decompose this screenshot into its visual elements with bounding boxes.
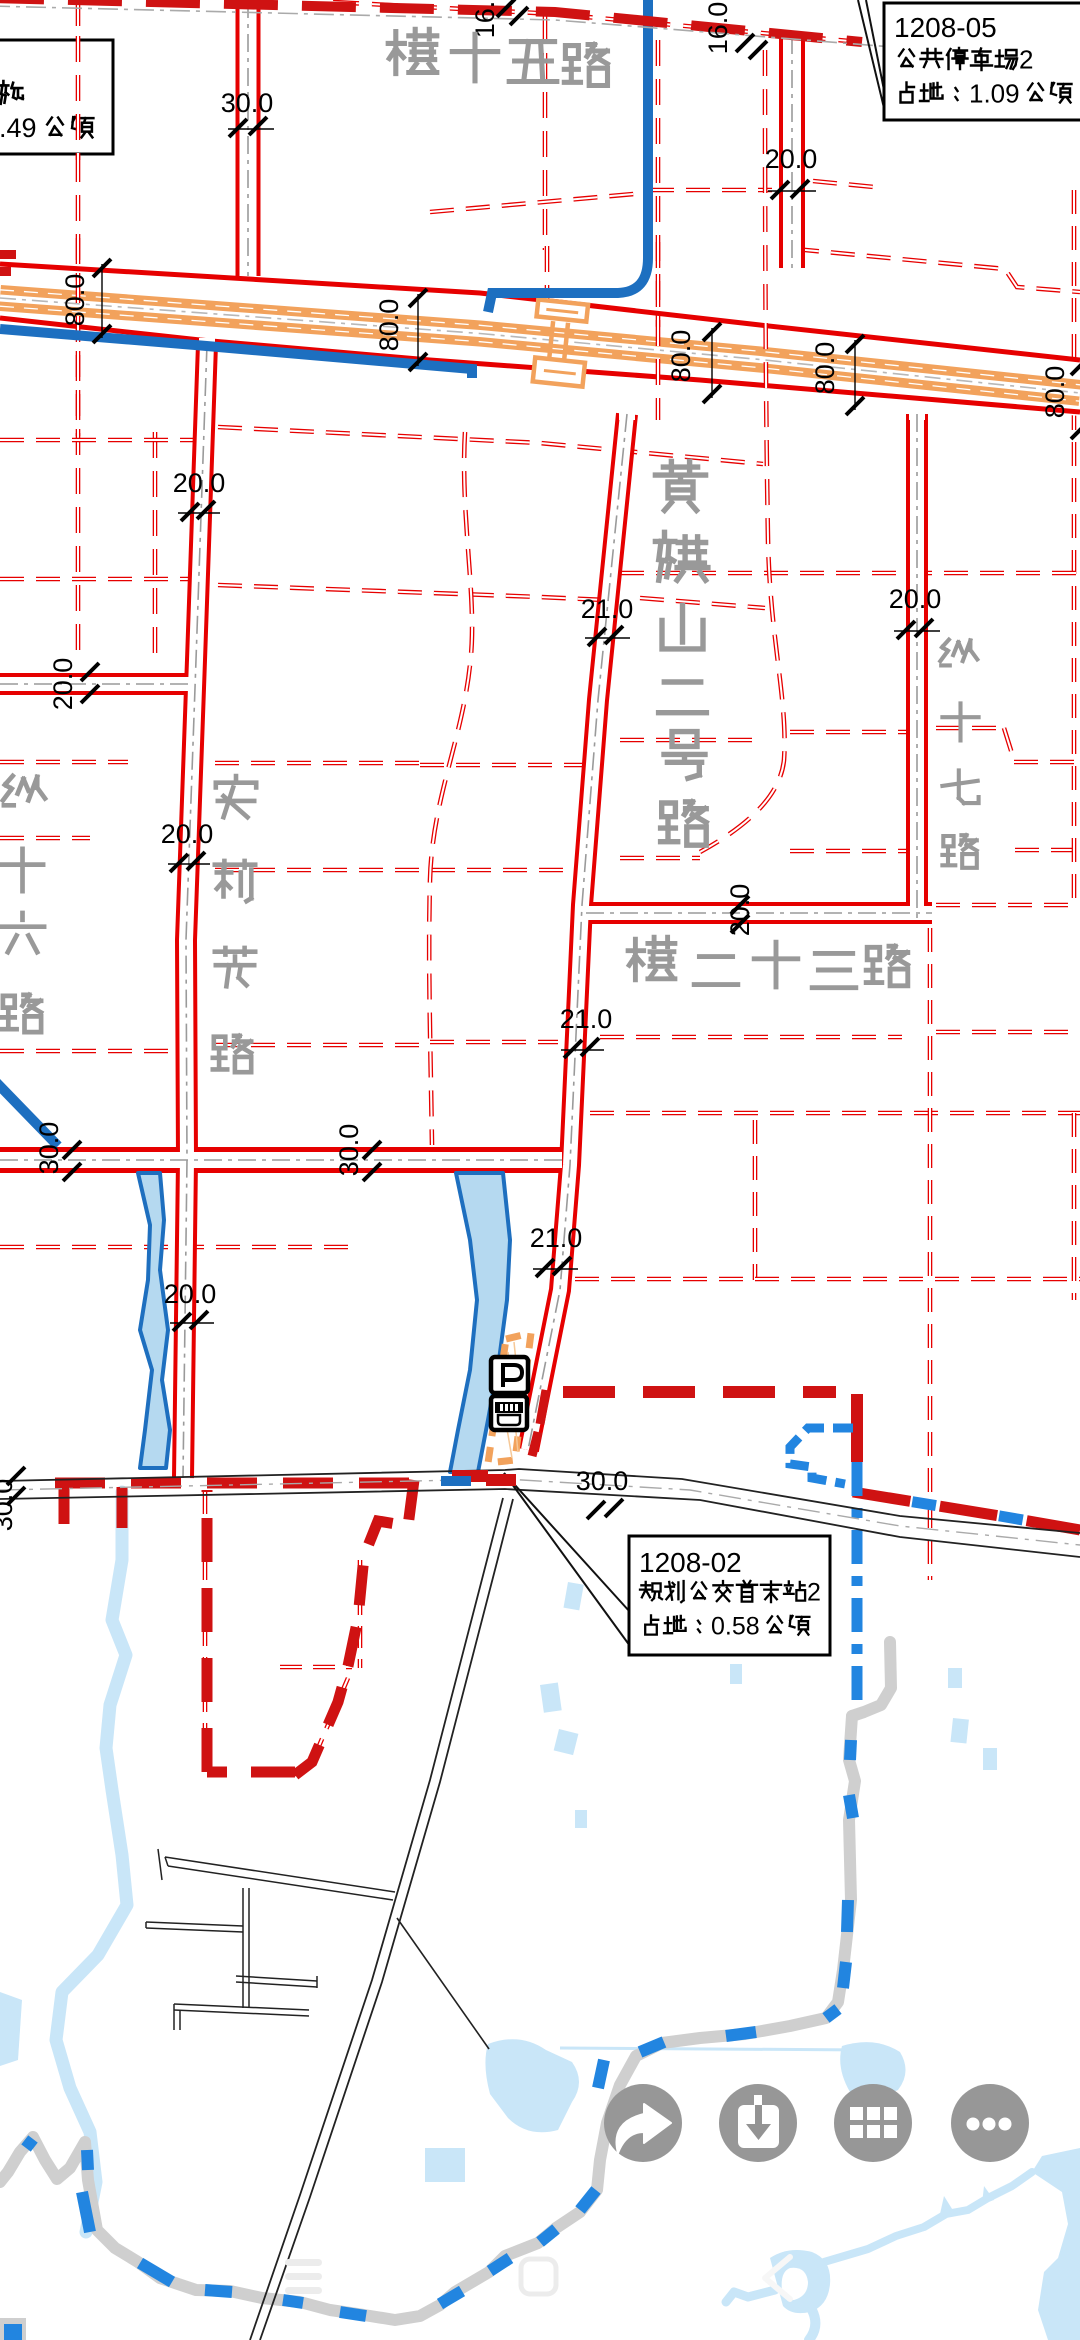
svg-text:0.58: 0.58 — [711, 1613, 760, 1641]
svg-text:1208-02: 1208-02 — [639, 1547, 742, 1578]
svg-text:80.0: 80.0 — [666, 330, 696, 383]
svg-text:20.0: 20.0 — [889, 584, 942, 614]
svg-text:30.0: 30.0 — [334, 1124, 364, 1177]
svg-text:20.0: 20.0 — [765, 144, 818, 174]
svg-text:20.0: 20.0 — [161, 819, 214, 849]
svg-text:80.0: 80.0 — [374, 299, 404, 352]
svg-text:30.0: 30.0 — [34, 1122, 64, 1175]
svg-text:20.0: 20.0 — [48, 658, 78, 711]
svg-text:21.0: 21.0 — [530, 1223, 583, 1253]
svg-text:2: 2 — [1019, 45, 1033, 75]
svg-text:30.0: 30.0 — [0, 1479, 18, 1532]
svg-text:21.0: 21.0 — [560, 1004, 613, 1034]
svg-text:80.0: 80.0 — [810, 342, 840, 395]
svg-text:20.0: 20.0 — [173, 468, 226, 498]
svg-text:0.49: 0.49 — [0, 113, 37, 143]
svg-text:80.0: 80.0 — [60, 274, 90, 327]
svg-text:20.0: 20.0 — [164, 1279, 217, 1309]
svg-text:1.09: 1.09 — [969, 79, 1020, 109]
svg-text:20.0: 20.0 — [725, 884, 755, 937]
svg-text:30.0: 30.0 — [576, 1466, 629, 1496]
svg-text:21.0: 21.0 — [581, 594, 634, 624]
svg-text:16.0: 16.0 — [703, 2, 733, 55]
svg-text:80.0: 80.0 — [1040, 366, 1070, 419]
svg-text:30.0: 30.0 — [221, 88, 274, 118]
svg-text:2: 2 — [807, 1579, 821, 1607]
svg-text:1208-05: 1208-05 — [894, 12, 997, 43]
